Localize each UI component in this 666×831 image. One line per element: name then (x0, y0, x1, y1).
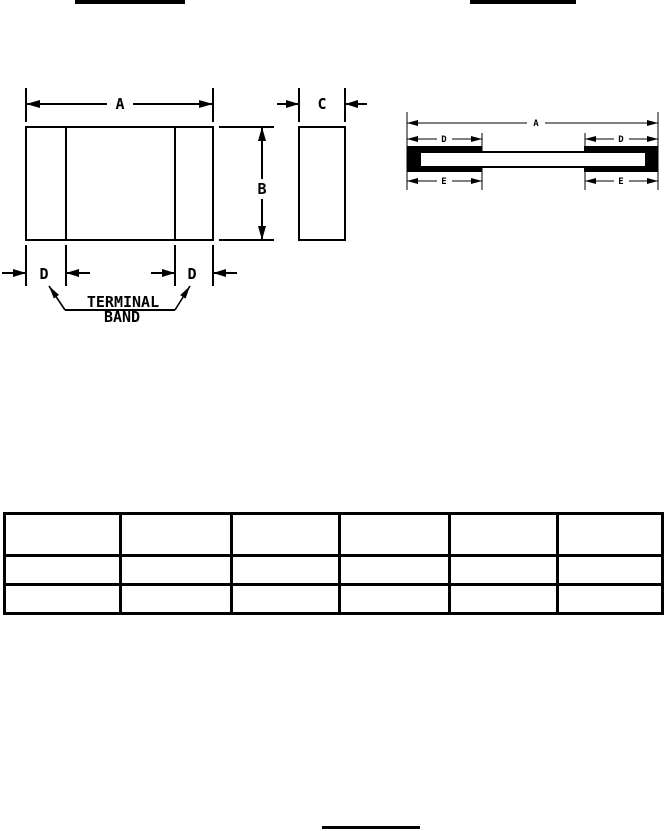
section-dim-e: E E (407, 177, 658, 187)
table-header-cell (340, 514, 450, 556)
table-cell (450, 556, 558, 585)
table-cell (121, 585, 232, 614)
arrowhead (585, 136, 596, 142)
arrowhead (647, 136, 658, 142)
arrowhead (258, 226, 266, 240)
arrowhead (647, 178, 658, 184)
arrowhead (407, 120, 418, 126)
arrowhead (471, 136, 482, 142)
table-cell (340, 585, 450, 614)
arrowhead (213, 269, 226, 277)
arrowhead (407, 136, 418, 142)
terminal-band-callout: TERMINAL BAND (49, 286, 190, 326)
section-dim-e-right-label: E (618, 177, 623, 187)
arrowhead (162, 269, 175, 277)
table-header-cell (121, 514, 232, 556)
arrowhead (286, 100, 299, 108)
terminal-band-label-line2: BAND (104, 308, 140, 326)
front-view-body (26, 127, 213, 240)
end-view-body (299, 127, 345, 240)
table-header-row (5, 514, 663, 556)
front-dim-d-left-label: D (39, 265, 48, 283)
arrowhead (585, 178, 596, 184)
table-cell (5, 556, 121, 585)
table-header-cell (558, 514, 663, 556)
table-row (5, 585, 663, 614)
table-cell (5, 585, 121, 614)
section-body (407, 146, 658, 172)
arrowhead (66, 269, 79, 277)
section-view-figure: A D D (407, 112, 658, 190)
front-dim-d: D D (2, 245, 237, 286)
table-cell (450, 585, 558, 614)
front-dim-a: A (26, 88, 213, 122)
table-header-cell (5, 514, 121, 556)
section-dim-a-label: A (533, 119, 539, 129)
table-cell (121, 556, 232, 585)
front-dim-b-label: B (257, 180, 266, 198)
arrowhead (647, 120, 658, 126)
figure-drawing: A B (0, 0, 666, 831)
leader-arrowhead (180, 286, 190, 299)
table-row (5, 556, 663, 585)
section-dim-a: A (407, 119, 658, 129)
arrowhead (13, 269, 26, 277)
document-page: A B (0, 0, 666, 831)
arrowhead (258, 127, 266, 141)
arrowhead (471, 178, 482, 184)
front-view-figure: A B (2, 88, 367, 326)
chip-outline (26, 127, 213, 240)
front-dim-b: B (219, 127, 274, 240)
front-dim-d-right-label: D (187, 265, 196, 283)
table-cell (232, 585, 340, 614)
end-profile-outline (299, 127, 345, 240)
section-dim-e-left-label: E (441, 177, 446, 187)
front-dim-c: C (277, 88, 367, 122)
front-dim-c-label: C (317, 95, 326, 113)
table-header-cell (232, 514, 340, 556)
section-dim-d-left-label: D (441, 135, 447, 145)
table-header-cell (450, 514, 558, 556)
table-cell (558, 556, 663, 585)
front-dim-a-label: A (115, 95, 124, 113)
arrowhead (345, 100, 358, 108)
arrowhead (199, 100, 213, 108)
table-cell (558, 585, 663, 614)
section-dim-d: D D (407, 135, 658, 145)
bottom-underline (322, 826, 420, 829)
arrowhead (26, 100, 40, 108)
substrate (420, 152, 646, 167)
table-cell (232, 556, 340, 585)
leader-arrowhead (49, 286, 59, 299)
section-dim-d-right-label: D (618, 135, 624, 145)
table-cell (340, 556, 450, 585)
dimension-table (3, 512, 664, 615)
arrowhead (407, 178, 418, 184)
